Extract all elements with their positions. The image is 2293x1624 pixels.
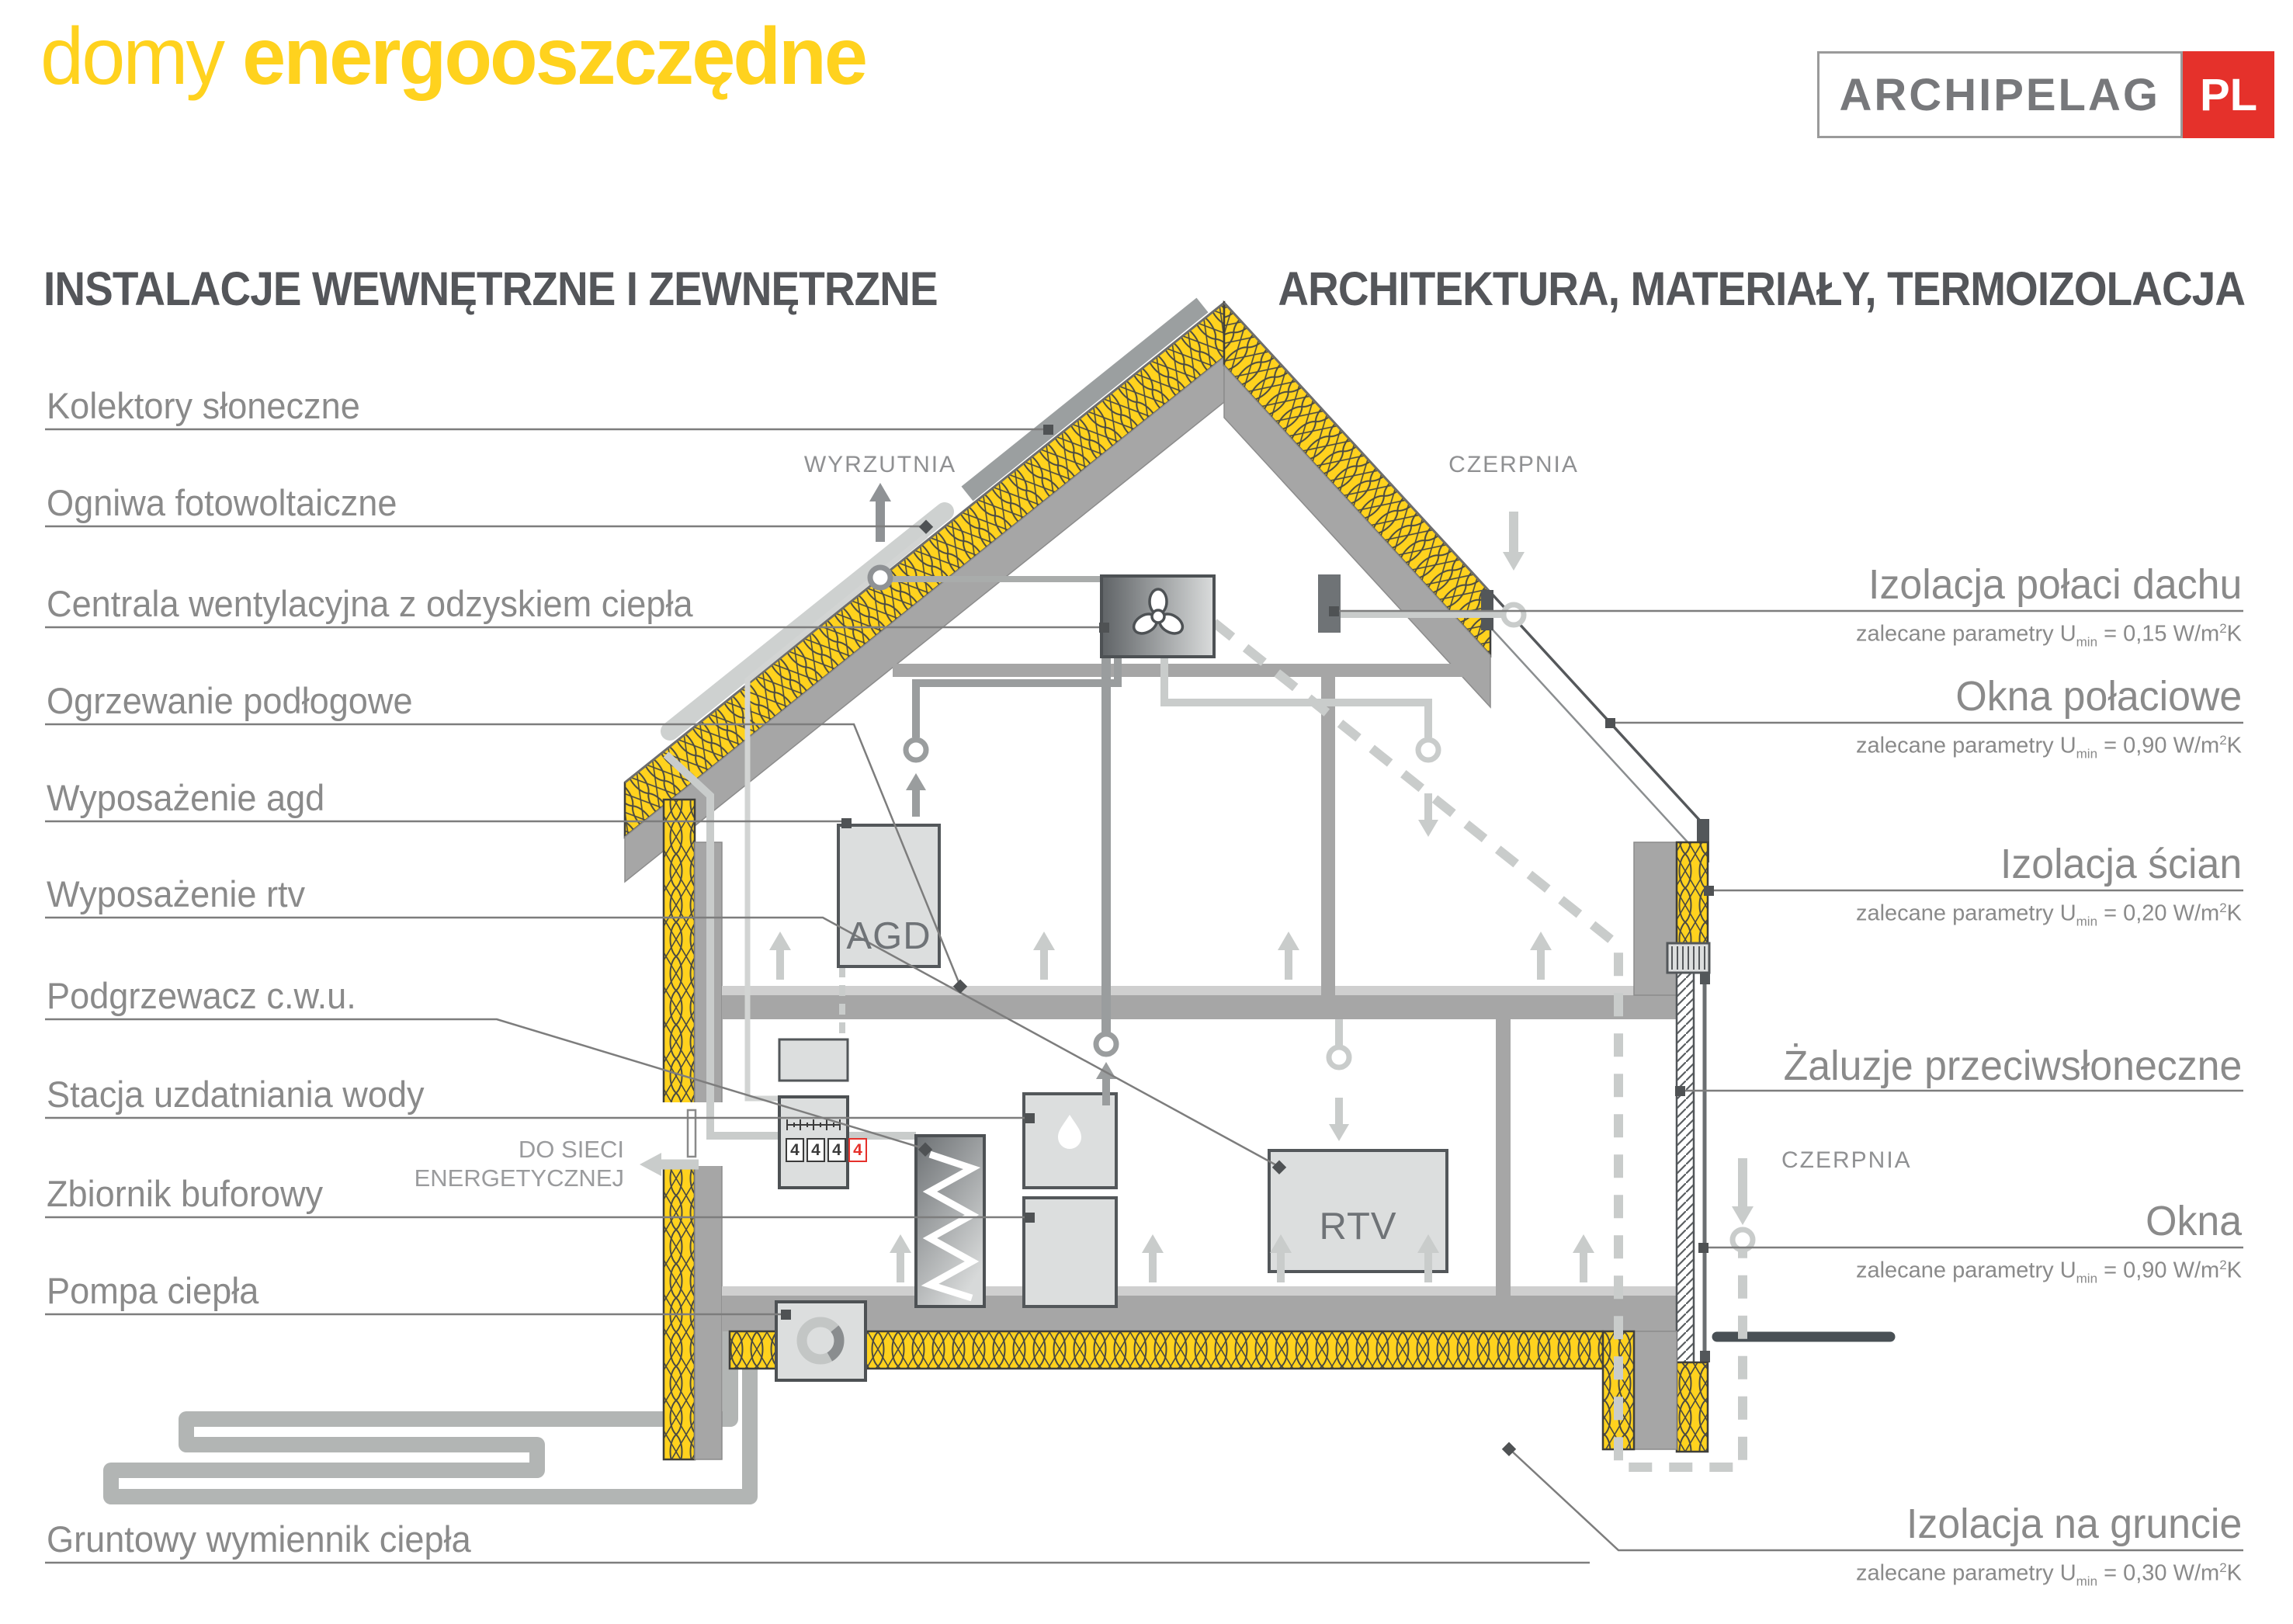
- label-centrala-wentylacyjna: Centrala wentylacyjna z odzyskiem ciepła: [47, 582, 693, 625]
- rt-label: RTV: [1269, 1205, 1447, 1248]
- floor-heating-arrows: [769, 932, 1594, 1282]
- window-with-blinds: [1677, 973, 1710, 1362]
- czerpnia-roof-terminal: [1504, 605, 1524, 625]
- archipelag-logo[interactable]: ARCHIPELAG PL: [1817, 51, 2274, 138]
- upper-partition-wall: [1321, 677, 1335, 995]
- czerpnia-roof-label: CZERPNIA: [1413, 452, 1615, 478]
- label-gruntowy-wymiennik: Gruntowy wymiennik ciepła: [47, 1518, 471, 1560]
- roof-right-insulation: [1224, 303, 1490, 655]
- param-okna: zalecane parametry Umin = 0,90 W/m2K: [1856, 1258, 2242, 1286]
- lower-partition-wall: [1496, 1019, 1511, 1296]
- label-podgrzewacz-cwu: Podgrzewacz c.w.u.: [47, 974, 356, 1017]
- label-izolacja-na-gruncie: Izolacja na gruncie: [1906, 1500, 2242, 1548]
- ventilation-unit: [1101, 576, 1214, 657]
- agd-label: AGD: [838, 914, 939, 958]
- param-izolacja-na-gruncie: zalecane parametry Umin = 0,30 W/m2K: [1856, 1560, 2242, 1589]
- attic-collar-beam: [893, 664, 1468, 677]
- label-wyposazenie-rtv: Wyposażenie rtv: [47, 873, 305, 915]
- label-ogniwa-fotowoltaiczne: Ogniwa fotowoltaiczne: [47, 481, 397, 524]
- title-light: domy: [40, 12, 223, 102]
- label-okna-polaciowe: Okna połaciowe: [1955, 672, 2242, 720]
- wyrzutnia-terminal: [870, 567, 890, 588]
- right-foundation: [1634, 1331, 1677, 1449]
- label-pompa-ciepla: Pompa ciepła: [47, 1269, 258, 1312]
- label-stacja-uzdatniania: Stacja uzdatniania wody: [47, 1073, 425, 1116]
- grid-export-arrow-head: [640, 1153, 661, 1176]
- right-foundation-insulation-inner: [1603, 1331, 1634, 1449]
- roof-right-deck: [1224, 366, 1490, 707]
- infographic-poster: domy energooszczędne ARCHIPELAG PL INSTA…: [0, 0, 2293, 1624]
- buffer-tank: [1024, 1198, 1116, 1306]
- left-wall: [662, 800, 724, 1459]
- right-foundation-insulation-outer: [1677, 1362, 1708, 1452]
- shutter-roller-box: [1667, 943, 1709, 973]
- label-izolacja-scian: Izolacja ścian: [2000, 840, 2242, 888]
- title-bold: energooszczędne: [242, 12, 866, 102]
- czerpnia-side-label: CZERPNIA: [1781, 1147, 1912, 1174]
- logo-name: ARCHIPELAG: [1817, 51, 2183, 138]
- label-zbiornik-buforowy: Zbiornik buforowy: [47, 1172, 323, 1215]
- logo-tld: PL: [2183, 51, 2274, 138]
- czerpnia-roof-arrow-icon: [1503, 512, 1525, 571]
- param-okna-polaciowe: zalecane parametry Umin = 0,90 W/m2K: [1856, 733, 2242, 762]
- grid-export-label: DO SIECI ENERGETYCZNEJ: [415, 1135, 624, 1192]
- label-okna: Okna: [2146, 1197, 2242, 1245]
- heading-right: ARCHITEKTURA, MATERIAŁY, TERMOIZOLACJA: [1278, 262, 2245, 316]
- dhw-heater-tank: [916, 1136, 984, 1306]
- param-izolacja-scian: zalecane parametry Umin = 0,20 W/m2K: [1856, 900, 2242, 929]
- wyrzutnia-label: WYRZUTNIA: [779, 452, 981, 478]
- right-wall-insulation: [1677, 842, 1708, 943]
- param-izolacja-polaci-dachu: zalecane parametry Umin = 0,15 W/m2K: [1856, 621, 2242, 650]
- label-kolektory-sloneczne: Kolektory słoneczne: [47, 384, 360, 427]
- label-zaluzje-przeciwsloneczne: Żaluzje przeciwsłoneczne: [1783, 1042, 2242, 1090]
- mid-floor-slab: [722, 986, 1677, 1019]
- water-treatment-station: [1024, 1094, 1116, 1188]
- page-title: domy energooszczędne: [40, 11, 866, 103]
- wyrzutnia-arrow-icon: [869, 483, 891, 542]
- czerpnia-side-arrow-icon: [1732, 1158, 1754, 1225]
- junction-box: [779, 1039, 848, 1081]
- house-cross-section-diagram: [0, 0, 2293, 1624]
- label-izolacja-polaci-dachu: Izolacja połaci dachu: [1868, 560, 2242, 609]
- meter-digits: 4444: [786, 1138, 869, 1162]
- label-ogrzewanie-podlogowe: Ogrzewanie podłogowe: [47, 679, 413, 722]
- label-wyposazenie-agd: Wyposażenie agd: [47, 776, 324, 819]
- attic-duct-block: [1318, 574, 1341, 633]
- heading-left: INSTALACJE WEWNĘTRZNE I ZEWNĘTRZNE: [43, 262, 938, 316]
- roof-right-slope: [1224, 303, 1490, 707]
- roof-window: [1481, 590, 1709, 864]
